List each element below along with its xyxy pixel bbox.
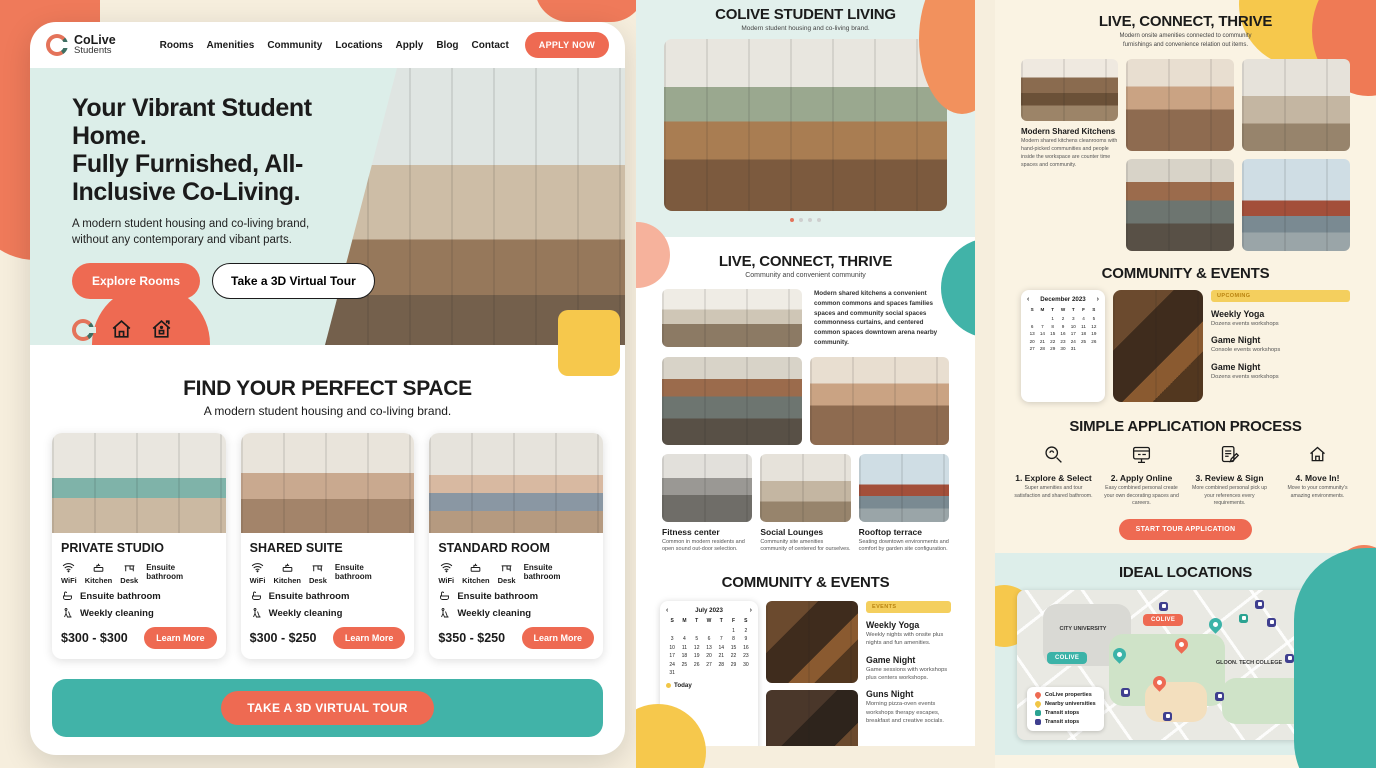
- event-item: Guns Night Morning pizza-oven events wor…: [866, 689, 951, 725]
- university-label: CITY UNIVERSITY: [1051, 626, 1115, 633]
- calendar-day[interactable]: 9: [1058, 324, 1068, 329]
- calendar-day[interactable]: 30: [1058, 346, 1068, 351]
- calendar-day[interactable]: 4: [678, 636, 690, 642]
- calendar-day[interactable]: [666, 628, 678, 634]
- brand-subtitle: Students: [74, 46, 116, 56]
- carousel-dot[interactable]: [799, 218, 803, 222]
- calendar-day[interactable]: 4: [1078, 316, 1088, 321]
- calendar-day[interactable]: 7: [1037, 324, 1047, 329]
- calendar-day[interactable]: [703, 628, 715, 634]
- event-item: Game Night Dozens events workshops: [1211, 362, 1350, 381]
- magnifier-icon: [1043, 444, 1064, 465]
- cleaning-icon: [250, 607, 263, 619]
- event-item: Weekly Yoga Dozens events workshops: [1211, 309, 1350, 328]
- kitchen-icon: [280, 561, 295, 574]
- nav-item[interactable]: Amenities: [207, 40, 255, 51]
- room-card-shared-suite[interactable]: SHARED SUITE WiFi Kitchen Desk Ensuite b…: [241, 433, 415, 659]
- hero-section: Your Vibrant Student Home. Fully Furnish…: [30, 68, 625, 345]
- teal-blob-bottom-right: [1294, 548, 1376, 768]
- college-label: GLOON. TECH COLLEGE: [1213, 660, 1285, 667]
- learn-more-button[interactable]: Learn More: [522, 627, 595, 649]
- calendar-prev[interactable]: ‹: [1027, 296, 1029, 303]
- room-cards: PRIVATE STUDIO WiFi Kitchen Desk Ensuite…: [30, 418, 625, 659]
- calendar-day[interactable]: 24: [1068, 339, 1078, 344]
- calendar-day[interactable]: 14: [715, 645, 727, 651]
- calendar-cells: 1234567891011121314151617181920212223242…: [666, 628, 752, 677]
- thrive-title: LIVE, CONNECT, THRIVE: [636, 253, 975, 270]
- thrive-subtitle: Modern onsite amenities connected to com…: [995, 32, 1376, 50]
- calendar-day[interactable]: 21: [1037, 339, 1047, 344]
- loft-photo: [1126, 159, 1234, 251]
- bathtub-icon: [250, 590, 263, 602]
- nav-item[interactable]: Locations: [335, 40, 382, 51]
- transit-stop-marker: [1121, 688, 1130, 697]
- calendar-day[interactable]: 31: [666, 670, 678, 676]
- tablet-mockup: COLIVE STUDENT LIVING Modern student hou…: [636, 0, 975, 768]
- calendar-day[interactable]: 27: [1027, 346, 1037, 351]
- colive-pin-icon: [1034, 690, 1042, 698]
- calendar-day[interactable]: 23: [1058, 339, 1068, 344]
- calendar-prev[interactable]: ‹: [666, 607, 668, 614]
- room-card-private-studio[interactable]: PRIVATE STUDIO WiFi Kitchen Desk Ensuite…: [52, 433, 226, 659]
- lounge-photo: [1242, 59, 1350, 151]
- process-title: SIMPLE APPLICATION PROCESS: [995, 418, 1376, 435]
- nav-item[interactable]: Blog: [436, 40, 458, 51]
- calendar-day[interactable]: 10: [666, 645, 678, 651]
- wifi-icon: [61, 561, 76, 574]
- brand-logo[interactable]: CoLive Students: [46, 34, 116, 57]
- desktop-mockup: CoLive Students RoomsAmenitiesCommunityL…: [30, 22, 625, 755]
- calendar-day[interactable]: 30: [740, 662, 752, 668]
- learn-more-button[interactable]: Learn More: [333, 627, 406, 649]
- calendar-day[interactable]: 6: [703, 636, 715, 642]
- hero-subtitle: A modern student housing and co-living b…: [72, 216, 375, 248]
- pizza-photo: [1113, 290, 1203, 402]
- desk-icon: [499, 561, 514, 574]
- nav-item[interactable]: Community: [267, 40, 322, 51]
- learn-more-button[interactable]: Learn More: [144, 627, 217, 649]
- calendar-day[interactable]: 25: [1078, 339, 1088, 344]
- calendar-day[interactable]: 3: [666, 636, 678, 642]
- carousel-dot[interactable]: [808, 218, 812, 222]
- virtual-tour-banner: TAKE A 3D VIRTUAL TOUR: [52, 679, 603, 737]
- price-label: $350 - $250: [438, 631, 505, 645]
- kitchen-icon: [468, 561, 483, 574]
- room-photo: [241, 433, 415, 533]
- browser-icon: [1131, 444, 1152, 465]
- calendar-day[interactable]: 6: [1027, 324, 1037, 329]
- carousel-photo: [664, 39, 947, 211]
- rooftop-photo: [859, 454, 949, 522]
- university-pin-icon: [1034, 699, 1042, 707]
- calendar-day[interactable]: 22: [1048, 339, 1058, 344]
- calendar-day[interactable]: 29: [1048, 346, 1058, 351]
- kitchen-photo: [1021, 59, 1118, 121]
- transit-stop-marker: [1267, 618, 1276, 627]
- calendar-day[interactable]: 26: [1089, 339, 1099, 344]
- calendar-day[interactable]: 20: [703, 653, 715, 659]
- calendar-day[interactable]: 15: [727, 645, 739, 651]
- events-list: UPCOMING Weekly Yoga Dozens events works…: [1211, 290, 1350, 402]
- ensuite-label: Ensuite bathroom: [524, 561, 570, 581]
- carousel-dots: [636, 218, 975, 222]
- calendar-day[interactable]: 17: [666, 653, 678, 659]
- calendar-day[interactable]: 28: [1037, 346, 1047, 351]
- step-review: 3. Review & Sign More combined personal …: [1189, 444, 1270, 508]
- map-legend: CoLive properties Nearby universities Tr…: [1027, 687, 1104, 731]
- calendar-day[interactable]: 14: [1037, 331, 1047, 336]
- nav-links: RoomsAmenitiesCommunityLocationsApplyBlo…: [160, 40, 509, 51]
- price-label: $300 - $250: [250, 631, 317, 645]
- wifi-icon: [439, 561, 454, 574]
- calendar-day[interactable]: 2: [740, 628, 752, 634]
- transit-stop-marker: [1255, 600, 1264, 609]
- calendar-day[interactable]: [715, 628, 727, 634]
- calendar-day[interactable]: 19: [691, 653, 703, 659]
- transit-stop-marker: [1159, 602, 1168, 611]
- nav-item[interactable]: Contact: [472, 40, 509, 51]
- today-dot: [666, 683, 671, 688]
- calendar-day[interactable]: 18: [1078, 331, 1088, 336]
- calendar-day[interactable]: 1: [1048, 316, 1058, 321]
- house-window-icon: [149, 317, 174, 342]
- calendar-day[interactable]: 7: [715, 636, 727, 642]
- today-label: Today: [674, 682, 692, 689]
- cleaning-icon: [438, 607, 451, 619]
- transit-stop-marker: [1163, 712, 1172, 721]
- room-photo: [52, 433, 226, 533]
- find-space-title: FIND YOUR PERFECT SPACE: [30, 377, 625, 401]
- explore-rooms-button[interactable]: Explore Rooms: [72, 263, 200, 299]
- mobile-mockup: LIVE, CONNECT, THRIVE Modern onsite amen…: [995, 0, 1376, 768]
- house-icon: [1307, 444, 1328, 465]
- wifi-icon: [250, 561, 265, 574]
- calendar-day[interactable]: [691, 628, 703, 634]
- desk-icon: [310, 561, 325, 574]
- room-photo: [429, 433, 603, 533]
- events-badge: EVENTS: [866, 601, 951, 613]
- calendar-day[interactable]: 22: [727, 653, 739, 659]
- find-space-subtitle: A modern student housing and co-living b…: [30, 404, 625, 418]
- calendar-month: July 2023: [695, 607, 723, 614]
- amenity-rooftop: Rooftop terrace Seating downtown environ…: [859, 454, 949, 554]
- virtual-tour-button[interactable]: Take a 3D Virtual Tour: [212, 263, 375, 299]
- calendar-december: ‹ December 2023 › SMTWTFS 12345678910111…: [1021, 290, 1105, 402]
- calendar-day[interactable]: 5: [1089, 316, 1099, 321]
- room-name: PRIVATE STUDIO: [61, 541, 217, 555]
- ensuite-label: Ensuite bathroom: [146, 561, 192, 581]
- desk-icon: [122, 561, 137, 574]
- community-photo: [1126, 59, 1234, 151]
- kitchens-caption: Modern Shared Kitchens: [1021, 127, 1118, 136]
- calendar-day[interactable]: 29: [727, 662, 739, 668]
- kitchens-column: Modern Shared Kitchens Modern shared kit…: [1021, 59, 1118, 251]
- colive-logo-icon: [46, 34, 68, 56]
- carousel-dot[interactable]: [817, 218, 821, 222]
- kitchen-icon: [91, 561, 106, 574]
- calendar-day[interactable]: 11: [678, 645, 690, 651]
- thrive-paragraph: Modern shared kitchens a convenient comm…: [814, 289, 949, 348]
- step-apply: 2. Apply Online Easy combined personal c…: [1101, 444, 1182, 508]
- calendar-day[interactable]: [678, 628, 690, 634]
- hero-title: Your Vibrant Student Home. Fully Furnish…: [72, 94, 375, 206]
- calendar-day[interactable]: 8: [1048, 324, 1058, 329]
- calendar-day[interactable]: 21: [715, 653, 727, 659]
- lounge-photo: [760, 454, 850, 522]
- colive-map-pill[interactable]: COLIVE: [1047, 652, 1087, 664]
- events-title: COMMUNITY & EVENTS: [995, 265, 1376, 282]
- calendar-day[interactable]: 5: [691, 636, 703, 642]
- university-pin[interactable]: [1206, 615, 1224, 633]
- thrive-subtitle: Community and convenient community: [636, 272, 975, 279]
- nav-item[interactable]: Rooms: [160, 40, 194, 51]
- calendar-day[interactable]: 26: [691, 662, 703, 668]
- start-application-button[interactable]: START TOUR APPLICATION: [1119, 519, 1253, 540]
- calendar-day[interactable]: 11: [1078, 324, 1088, 329]
- rooftop-photo: [1242, 159, 1350, 251]
- calendar-day[interactable]: 12: [691, 645, 703, 651]
- colive-map-pill[interactable]: COLIVE: [1143, 614, 1183, 626]
- room-name: STANDARD ROOM: [438, 541, 594, 555]
- calendar-day[interactable]: 3: [1068, 316, 1078, 321]
- calendar-day[interactable]: 2: [1058, 316, 1068, 321]
- coral-blob-top-gap: [535, 0, 645, 22]
- calendar-day[interactable]: 28: [715, 662, 727, 668]
- amenity-fitness: Fitness center Common in modern resident…: [662, 454, 752, 554]
- calendar-day[interactable]: 18: [678, 653, 690, 659]
- calendar-day[interactable]: [1027, 316, 1037, 321]
- calendar-day[interactable]: 13: [703, 645, 715, 651]
- transit-stop-marker: [1285, 654, 1294, 663]
- calendar-day[interactable]: 24: [666, 662, 678, 668]
- shared-kitchen-photo: [662, 289, 802, 347]
- thrive-title: LIVE, CONNECT, THRIVE: [995, 13, 1376, 30]
- carousel-dot[interactable]: [790, 218, 794, 222]
- district-area: [1145, 682, 1207, 722]
- calendar-day[interactable]: 9: [740, 636, 752, 642]
- calendar-day[interactable]: 16: [1058, 331, 1068, 336]
- kitchens-desc: Modern shared kitchens cleanrooms with h…: [1021, 138, 1118, 170]
- room-name: SHARED SUITE: [250, 541, 406, 555]
- bathtub-icon: [438, 590, 451, 602]
- price-label: $300 - $300: [61, 631, 128, 645]
- calendar-day[interactable]: 16: [740, 645, 752, 651]
- loft-photo: [662, 357, 802, 445]
- calendar-day[interactable]: [1037, 316, 1047, 321]
- calendar-day[interactable]: 25: [678, 662, 690, 668]
- yellow-accent-shape: [558, 310, 620, 376]
- calendar-day[interactable]: 23: [740, 653, 752, 659]
- calendar-day[interactable]: 10: [1068, 324, 1078, 329]
- navbar: CoLive Students RoomsAmenitiesCommunityL…: [30, 22, 625, 68]
- transit-stop-marker: [1215, 692, 1224, 701]
- events-badge: UPCOMING: [1211, 290, 1350, 302]
- transit-stop-marker: [1239, 614, 1248, 623]
- house-icon: [109, 317, 134, 342]
- events-list: EVENTS Weekly Yoga Weekly nights with on…: [866, 601, 951, 768]
- event-item: Game Night Console events workshops: [1211, 335, 1350, 354]
- transit-square-icon: [1035, 719, 1041, 725]
- room-card-standard-room[interactable]: STANDARD ROOM WiFi Kitchen Desk Ensuite …: [429, 433, 603, 659]
- amenity-lounges: Social Lounges Community site amenities …: [760, 454, 850, 554]
- step-explore: 1. Explore & Select Super amenities and …: [1013, 444, 1094, 508]
- cleaning-icon: [61, 607, 74, 619]
- calendar-day[interactable]: 17: [1068, 331, 1078, 336]
- calendar-day-headers: SMTWTFS: [1027, 307, 1099, 312]
- calendar-day[interactable]: 27: [703, 662, 715, 668]
- calendar-day[interactable]: 31: [1068, 346, 1078, 351]
- event-item: Game Night Game sessions with workshops …: [866, 655, 951, 683]
- calendar-next[interactable]: ›: [750, 607, 752, 614]
- events-title: COMMUNITY & EVENTS: [636, 574, 975, 591]
- event-item: Weekly Yoga Weekly nights with onsite pl…: [866, 620, 951, 648]
- pizza-photo: [766, 601, 858, 683]
- apply-now-button[interactable]: APPLY NOW: [525, 32, 609, 58]
- take-3d-tour-button[interactable]: TAKE A 3D VIRTUAL TOUR: [221, 691, 433, 725]
- fitness-photo: [662, 454, 752, 522]
- transit-square-icon: [1035, 710, 1041, 716]
- calendar-day[interactable]: 12: [1089, 324, 1099, 329]
- step-movein: 4. Move In! Move to your community's ama…: [1277, 444, 1358, 508]
- bathtub-icon: [61, 590, 74, 602]
- calendar-cells: 1234567891011121314151617181920212223242…: [1027, 316, 1099, 351]
- nav-item[interactable]: Apply: [396, 40, 424, 51]
- calendar-day[interactable]: 1: [727, 628, 739, 634]
- calendar-day[interactable]: 13: [1027, 331, 1037, 336]
- colive-logo-icon: [72, 319, 94, 341]
- calendar-next[interactable]: ›: [1097, 296, 1099, 303]
- calendar-day[interactable]: 15: [1048, 331, 1058, 336]
- document-sign-icon: [1219, 444, 1240, 465]
- calendar-day[interactable]: 19: [1089, 331, 1099, 336]
- calendar-month: December 2023: [1040, 296, 1085, 303]
- calendar-day[interactable]: 20: [1027, 339, 1037, 344]
- calendar-day-headers: SMTWTFS: [666, 618, 752, 624]
- community-photo: [810, 357, 950, 445]
- ensuite-label: Ensuite bathroom: [335, 561, 381, 581]
- calendar-day[interactable]: 8: [727, 636, 739, 642]
